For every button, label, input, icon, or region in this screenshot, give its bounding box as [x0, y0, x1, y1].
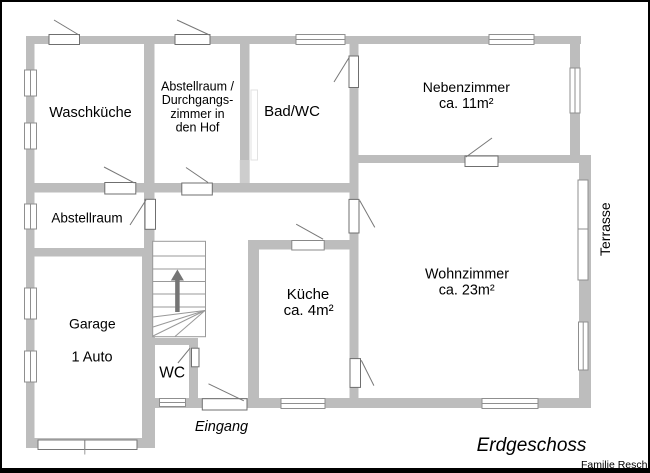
svg-text:ca. 23m²: ca. 23m²	[439, 283, 495, 299]
svg-text:Abstellraum /: Abstellraum /	[161, 79, 234, 93]
svg-text:WC: WC	[159, 365, 185, 382]
svg-text:Garage: Garage	[69, 316, 116, 332]
svg-text:1 Auto: 1 Auto	[71, 350, 112, 366]
svg-text:ca. 11m²: ca. 11m²	[439, 96, 494, 112]
svg-text:den Hof: den Hof	[176, 121, 220, 135]
svg-text:Küche: Küche	[287, 286, 330, 303]
svg-text:Eingang: Eingang	[195, 419, 248, 435]
svg-text:ca. 4m²: ca. 4m²	[284, 302, 334, 319]
svg-text:Bad/WC: Bad/WC	[264, 103, 320, 120]
svg-text:zimmer in: zimmer in	[170, 107, 224, 121]
svg-text:Wohnzimmer: Wohnzimmer	[425, 267, 509, 283]
svg-text:Abstellraum: Abstellraum	[51, 211, 122, 226]
svg-text:Durchgangs-: Durchgangs-	[162, 93, 234, 107]
svg-text:Terrasse: Terrasse	[597, 202, 613, 256]
svg-text:Nebenzimmer: Nebenzimmer	[423, 79, 510, 95]
svg-text:Waschküche: Waschküche	[49, 105, 131, 121]
svg-text:Erdgeschoss: Erdgeschoss	[477, 435, 587, 456]
